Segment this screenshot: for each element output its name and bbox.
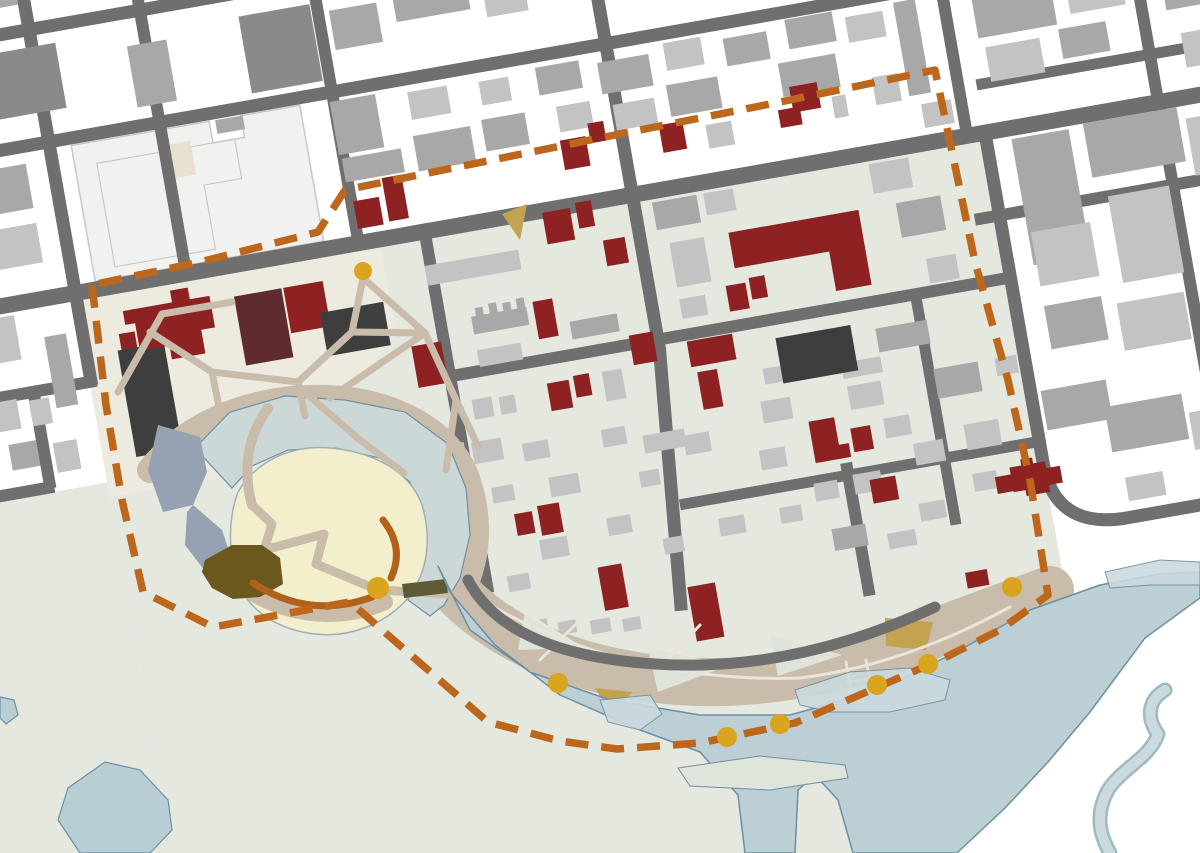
node-marker (770, 714, 790, 734)
context-building (475, 307, 484, 317)
context-building (478, 77, 512, 106)
heritage-building (850, 425, 874, 452)
heritage-building (659, 121, 687, 153)
context-building (472, 396, 495, 419)
context-building (330, 94, 385, 155)
context-building (639, 469, 661, 488)
context-building (498, 394, 517, 415)
context-building (502, 302, 511, 312)
node-marker (548, 673, 568, 693)
node-marker (367, 577, 389, 599)
heritage-building (514, 511, 536, 536)
node-marker (918, 654, 938, 674)
node-marker (1002, 577, 1022, 597)
heritage-building (542, 208, 575, 244)
heritage-building (869, 476, 899, 504)
site-plan-page (0, 0, 1200, 853)
context-building (663, 535, 685, 554)
site-plan-map (0, 0, 1200, 853)
context-building (329, 2, 383, 50)
context-building (921, 99, 955, 128)
context-building (53, 439, 82, 473)
context-building (238, 4, 322, 93)
node-marker (354, 262, 372, 280)
node-marker (717, 727, 737, 747)
context-building (1031, 222, 1100, 287)
context-building (705, 121, 735, 149)
context-building (926, 254, 960, 284)
precinct-path (352, 332, 425, 333)
heritage-building (353, 197, 383, 229)
heritage-building (629, 331, 658, 365)
node-marker (867, 675, 887, 695)
heritage-building (603, 237, 629, 266)
context-building (8, 440, 40, 470)
